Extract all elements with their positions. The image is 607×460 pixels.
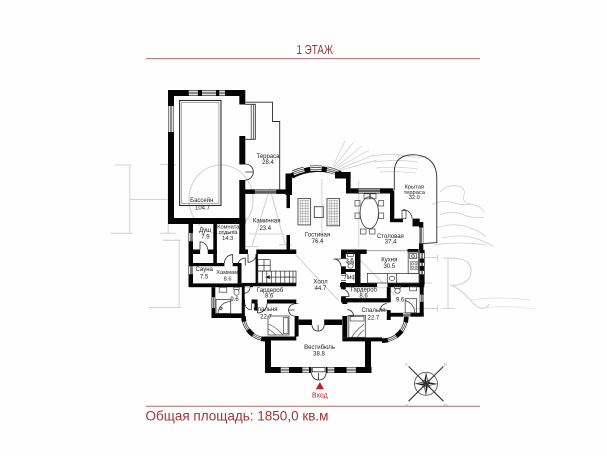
svg-text:В: В [444,361,447,366]
svg-text:30.5: 30.5 [383,264,395,270]
svg-text:Спальня: Спальня [253,307,277,313]
svg-text:44.7: 44.7 [315,286,327,292]
svg-text:Гардероб: Гардероб [351,287,378,293]
svg-text:76.4: 76.4 [312,239,324,245]
svg-text:7.9: 7.9 [201,235,210,241]
svg-text:Душ: Душ [199,228,211,234]
svg-text:8.6: 8.6 [224,277,232,283]
svg-text:Терраса: Терраса [256,154,280,160]
svg-text:Холл: Холл [313,280,328,286]
svg-text:Гостиная: Гостиная [305,233,330,239]
svg-text:32.0: 32.0 [409,195,420,201]
svg-text:3.6: 3.6 [345,258,354,264]
svg-text:104.7: 104.7 [195,205,211,211]
svg-text:37.4: 37.4 [385,239,397,245]
svg-text:22.7: 22.7 [368,315,380,321]
svg-text:Общая площадь: 1850,0 кв.м: Общая площадь: 1850,0 кв.м [146,409,329,424]
svg-text:8.6: 8.6 [265,293,274,299]
svg-text:Лифт: Лифт [344,275,359,281]
svg-text:23.4: 23.4 [259,226,271,232]
svg-text:С: С [405,361,408,366]
svg-text:9.6: 9.6 [396,297,405,303]
svg-text:38.8: 38.8 [313,351,325,357]
svg-text:7.5: 7.5 [200,274,209,280]
svg-text:Вестибюль: Вестибюль [304,345,335,351]
svg-text:Сауна: Сауна [196,267,214,273]
svg-text:22.7: 22.7 [260,314,272,320]
svg-text:14.3: 14.3 [222,236,233,242]
svg-text:Кухня: Кухня [381,258,397,264]
svg-text:28.4: 28.4 [262,160,274,166]
svg-text:Бассейн: Бассейн [190,197,213,204]
svg-text:Спальня: Спальня [361,308,385,314]
svg-text:Хаммам: Хаммам [216,270,238,276]
svg-text:Вход: Вход [312,393,328,400]
svg-text:9.6: 9.6 [230,297,239,303]
svg-text:Каминная: Каминная [253,219,281,225]
svg-text:1 ЭТАЖ: 1 ЭТАЖ [297,43,334,57]
